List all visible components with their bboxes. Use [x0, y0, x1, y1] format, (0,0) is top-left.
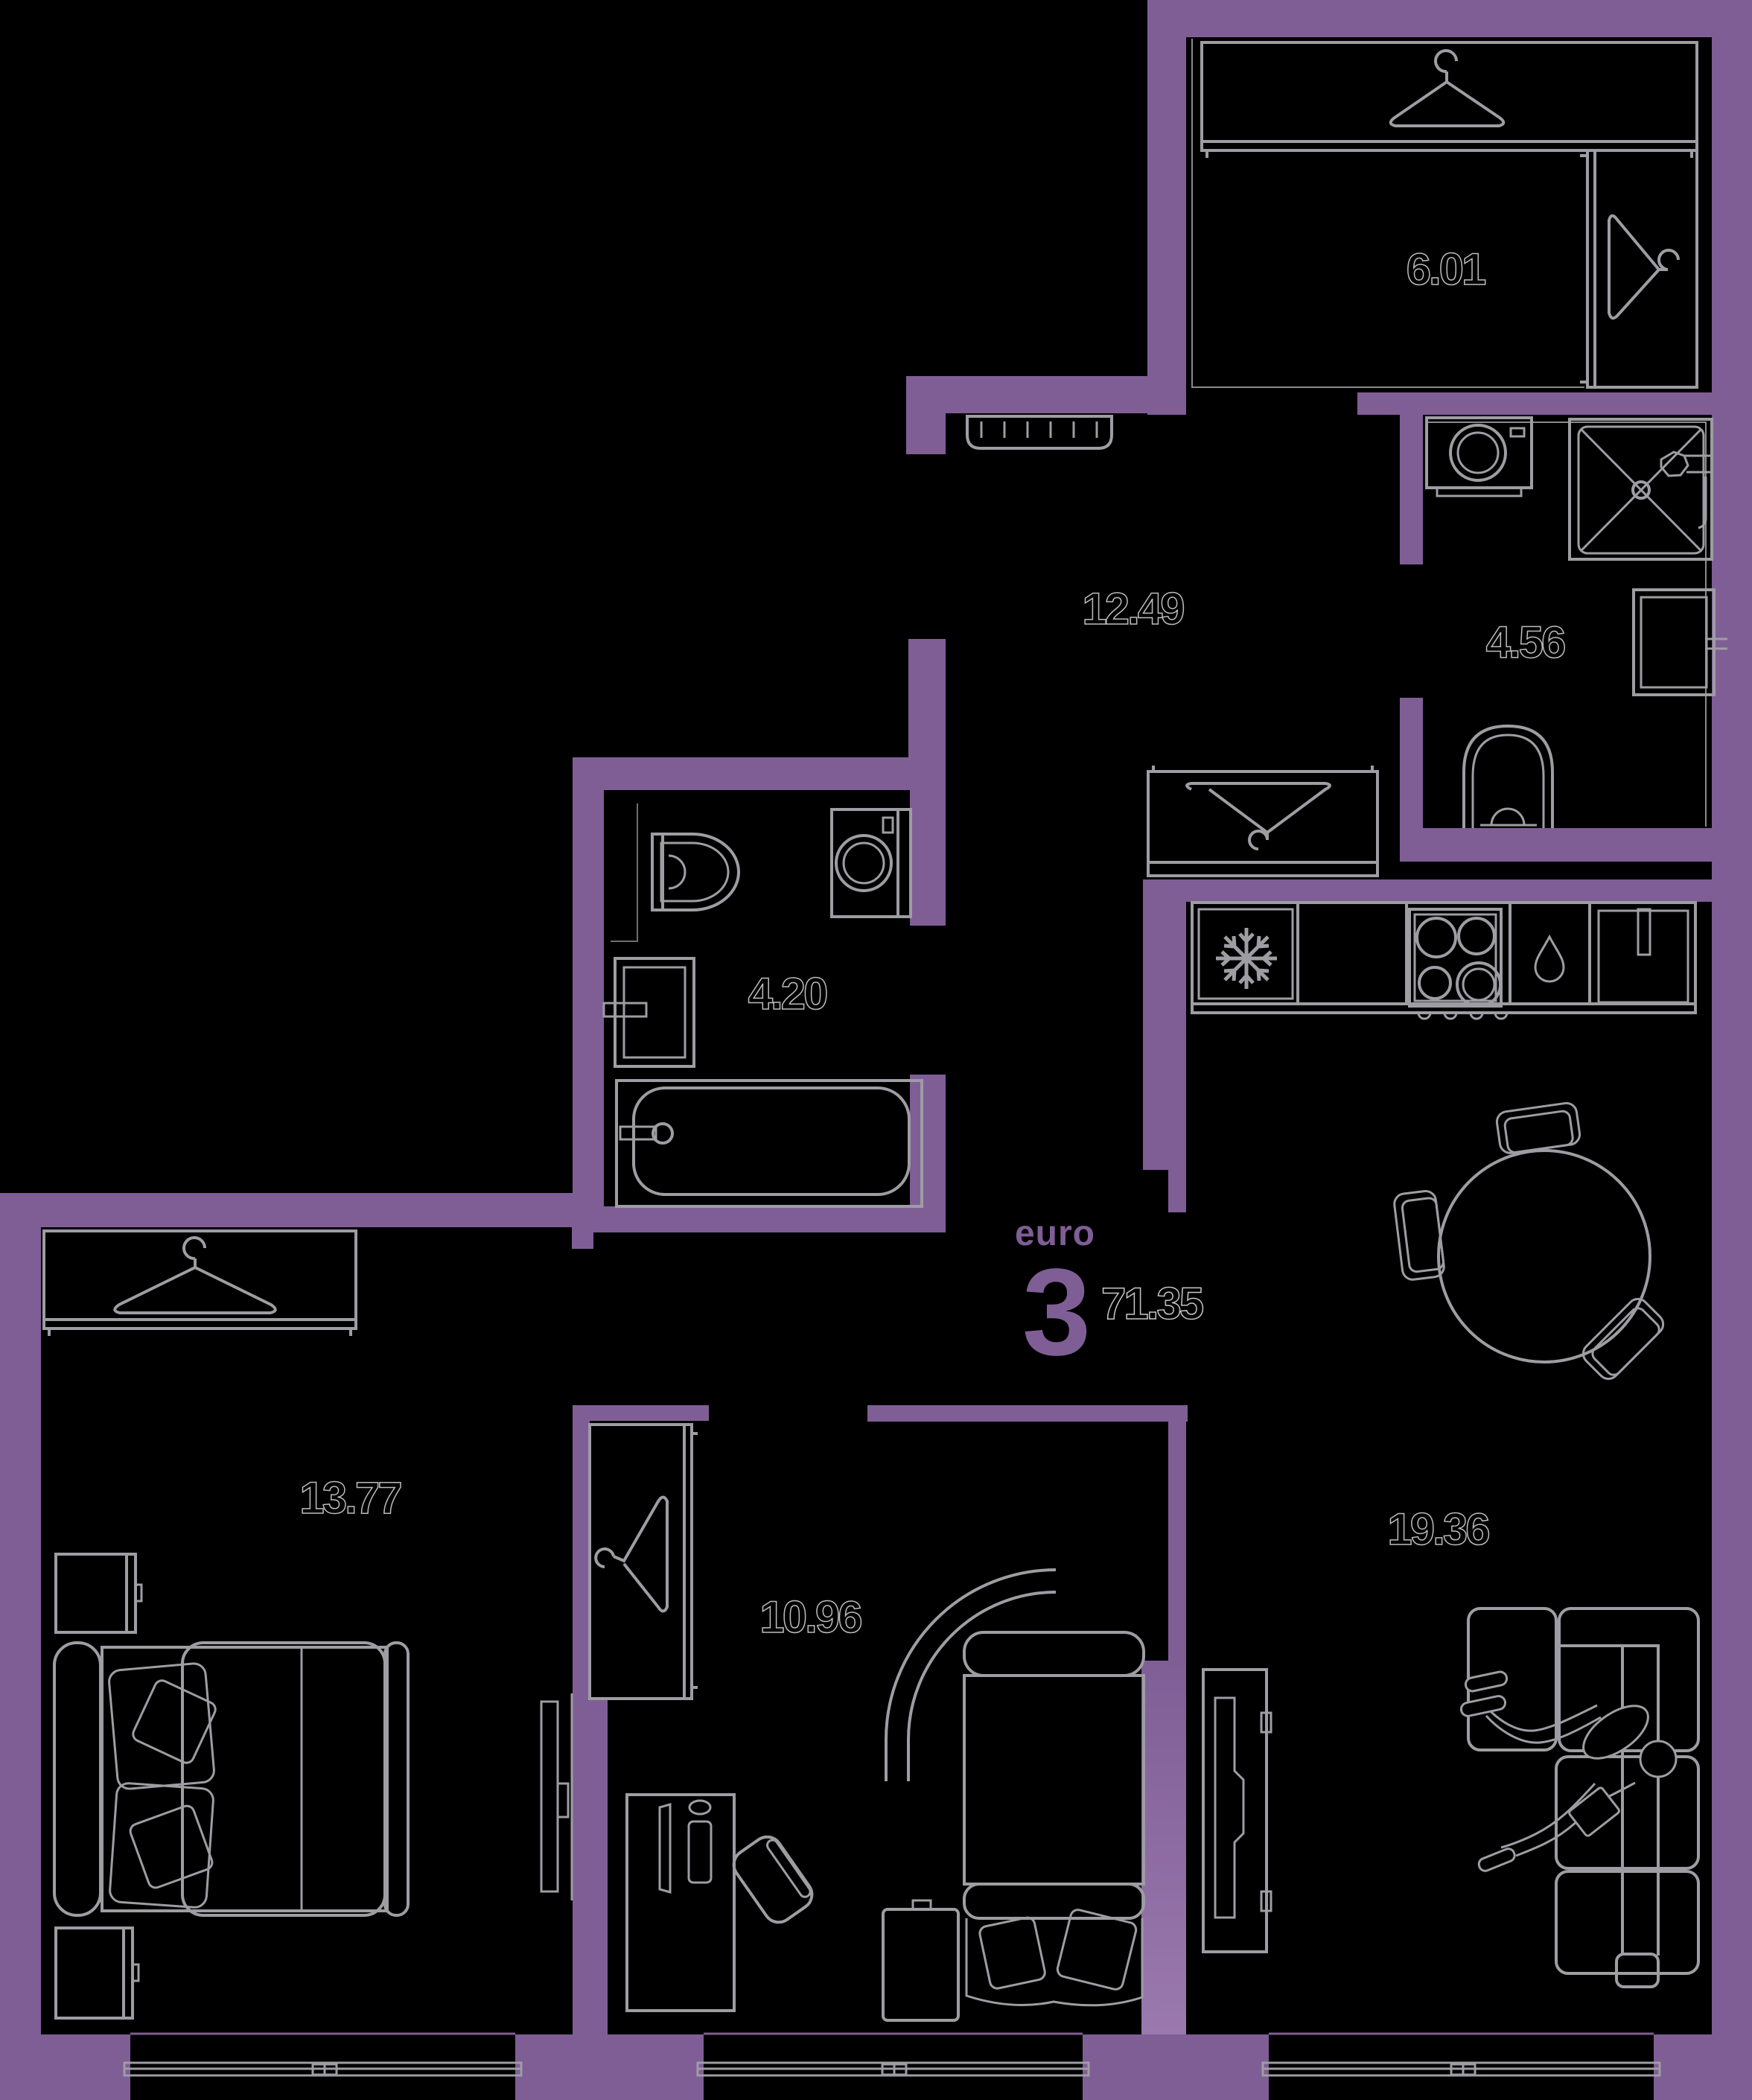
svg-text:6.01: 6.01	[1407, 244, 1485, 294]
svg-text:71.35: 71.35	[1101, 1279, 1203, 1329]
svg-text:19.36: 19.36	[1387, 1504, 1489, 1554]
svg-text:4.56: 4.56	[1486, 617, 1565, 667]
svg-text:13.77: 13.77	[299, 1473, 401, 1523]
svg-text:10.96: 10.96	[759, 1592, 861, 1642]
svg-text:3: 3	[1022, 1244, 1091, 1381]
svg-text:12.49: 12.49	[1082, 584, 1184, 634]
svg-text:4.20: 4.20	[748, 969, 826, 1019]
